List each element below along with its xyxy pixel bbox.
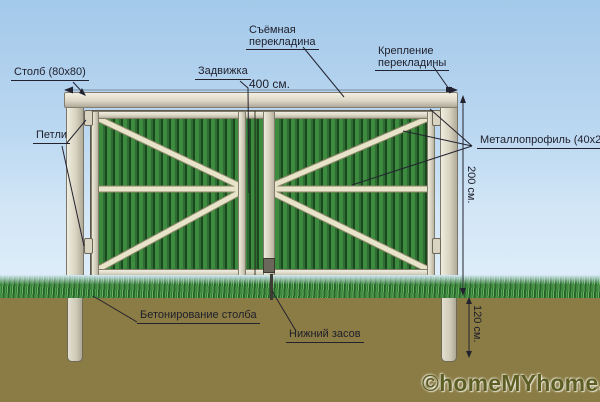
label-latch: Задвижка bbox=[195, 66, 251, 80]
label-crossbar-mount-line2: перекладины bbox=[378, 58, 446, 70]
latch-bar bbox=[263, 111, 275, 277]
right-post-underground bbox=[441, 294, 457, 362]
hinge-top-right bbox=[432, 110, 441, 126]
dimension-gate-width: 400 см. bbox=[249, 77, 290, 91]
label-removable-crossbar: Съёмная перекладина bbox=[246, 25, 319, 50]
label-crossbar-mount-line1: Крепление bbox=[378, 46, 446, 58]
label-hinges: Петли bbox=[33, 130, 70, 144]
label-bottom-bolt: Нижний засов bbox=[286, 329, 364, 343]
label-removable-crossbar-line1: Съёмная bbox=[249, 25, 316, 37]
dimension-gate-height: 200 см. bbox=[465, 166, 477, 204]
bottom-bolt-bracket bbox=[263, 258, 275, 273]
left-post-underground bbox=[67, 294, 83, 362]
bottom-bolt-rod bbox=[270, 274, 273, 300]
grass-strip bbox=[0, 275, 600, 298]
right-post bbox=[440, 104, 458, 297]
label-post-concreting: Бетонирование столба bbox=[137, 310, 260, 324]
gate-leaves bbox=[90, 110, 434, 276]
watermark: ©homeMYhome.ru bbox=[422, 370, 600, 397]
dimension-post-depth: 120 см. bbox=[471, 305, 483, 343]
label-metal-profile: Металлопрофиль (40x20) bbox=[477, 135, 600, 149]
removable-crossbar bbox=[64, 92, 458, 108]
label-crossbar-mount: Крепление перекладины bbox=[375, 46, 449, 71]
gate-construction-diagram: Столб (80x80) Петли Задвижка Съёмная пер… bbox=[0, 0, 600, 402]
left-leaf-inner-stile bbox=[238, 111, 246, 277]
leaf-meeting-line bbox=[254, 111, 256, 277]
label-post: Столб (80x80) bbox=[11, 67, 89, 81]
hinge-top-left bbox=[84, 110, 93, 126]
label-removable-crossbar-line2: перекладина bbox=[249, 37, 316, 49]
hinge-bottom-left bbox=[84, 238, 93, 254]
hinge-bottom-right bbox=[432, 238, 441, 254]
